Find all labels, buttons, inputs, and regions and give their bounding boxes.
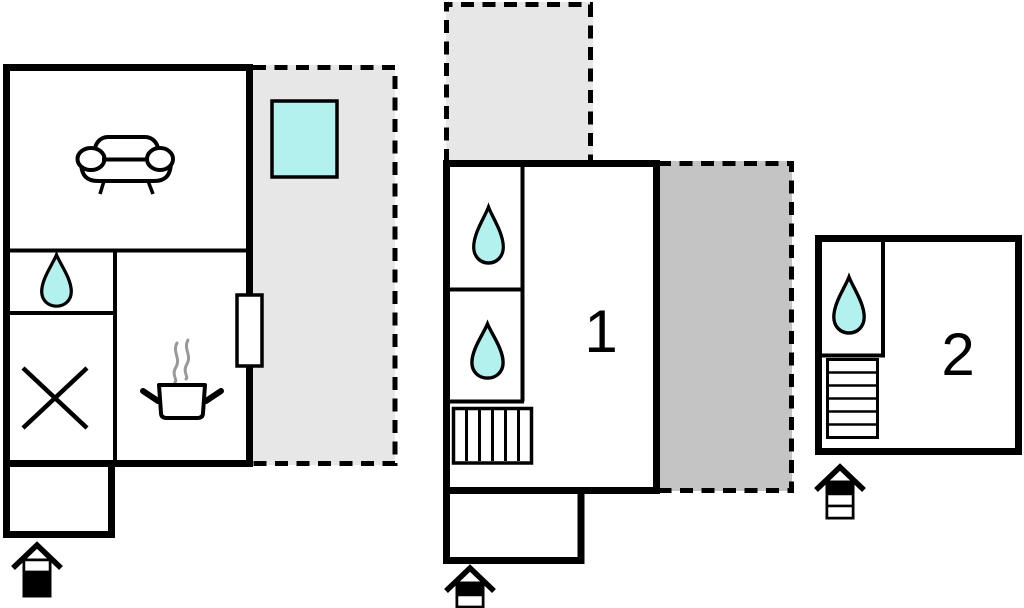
entrance-arrow-icon <box>816 467 864 518</box>
main-house <box>3 65 395 596</box>
entrance-arrow-icon <box>446 568 494 608</box>
terrace-right-area <box>658 161 792 491</box>
terrace-top-area <box>446 2 593 163</box>
floor-plan: 1 2 <box>0 0 1024 608</box>
apartment-2: 2 <box>816 239 1019 519</box>
entrance-arrow-icon <box>13 545 61 596</box>
unit-label-1: 1 <box>584 298 617 365</box>
stairs-icon <box>454 409 532 464</box>
stairs-icon <box>828 360 878 438</box>
apartment-1: 1 <box>443 2 792 608</box>
unit-label-2: 2 <box>941 321 974 388</box>
door-icon <box>237 295 262 366</box>
whirlpool-icon <box>272 101 337 177</box>
floor-plan-page: 1 2 <box>0 0 1024 608</box>
